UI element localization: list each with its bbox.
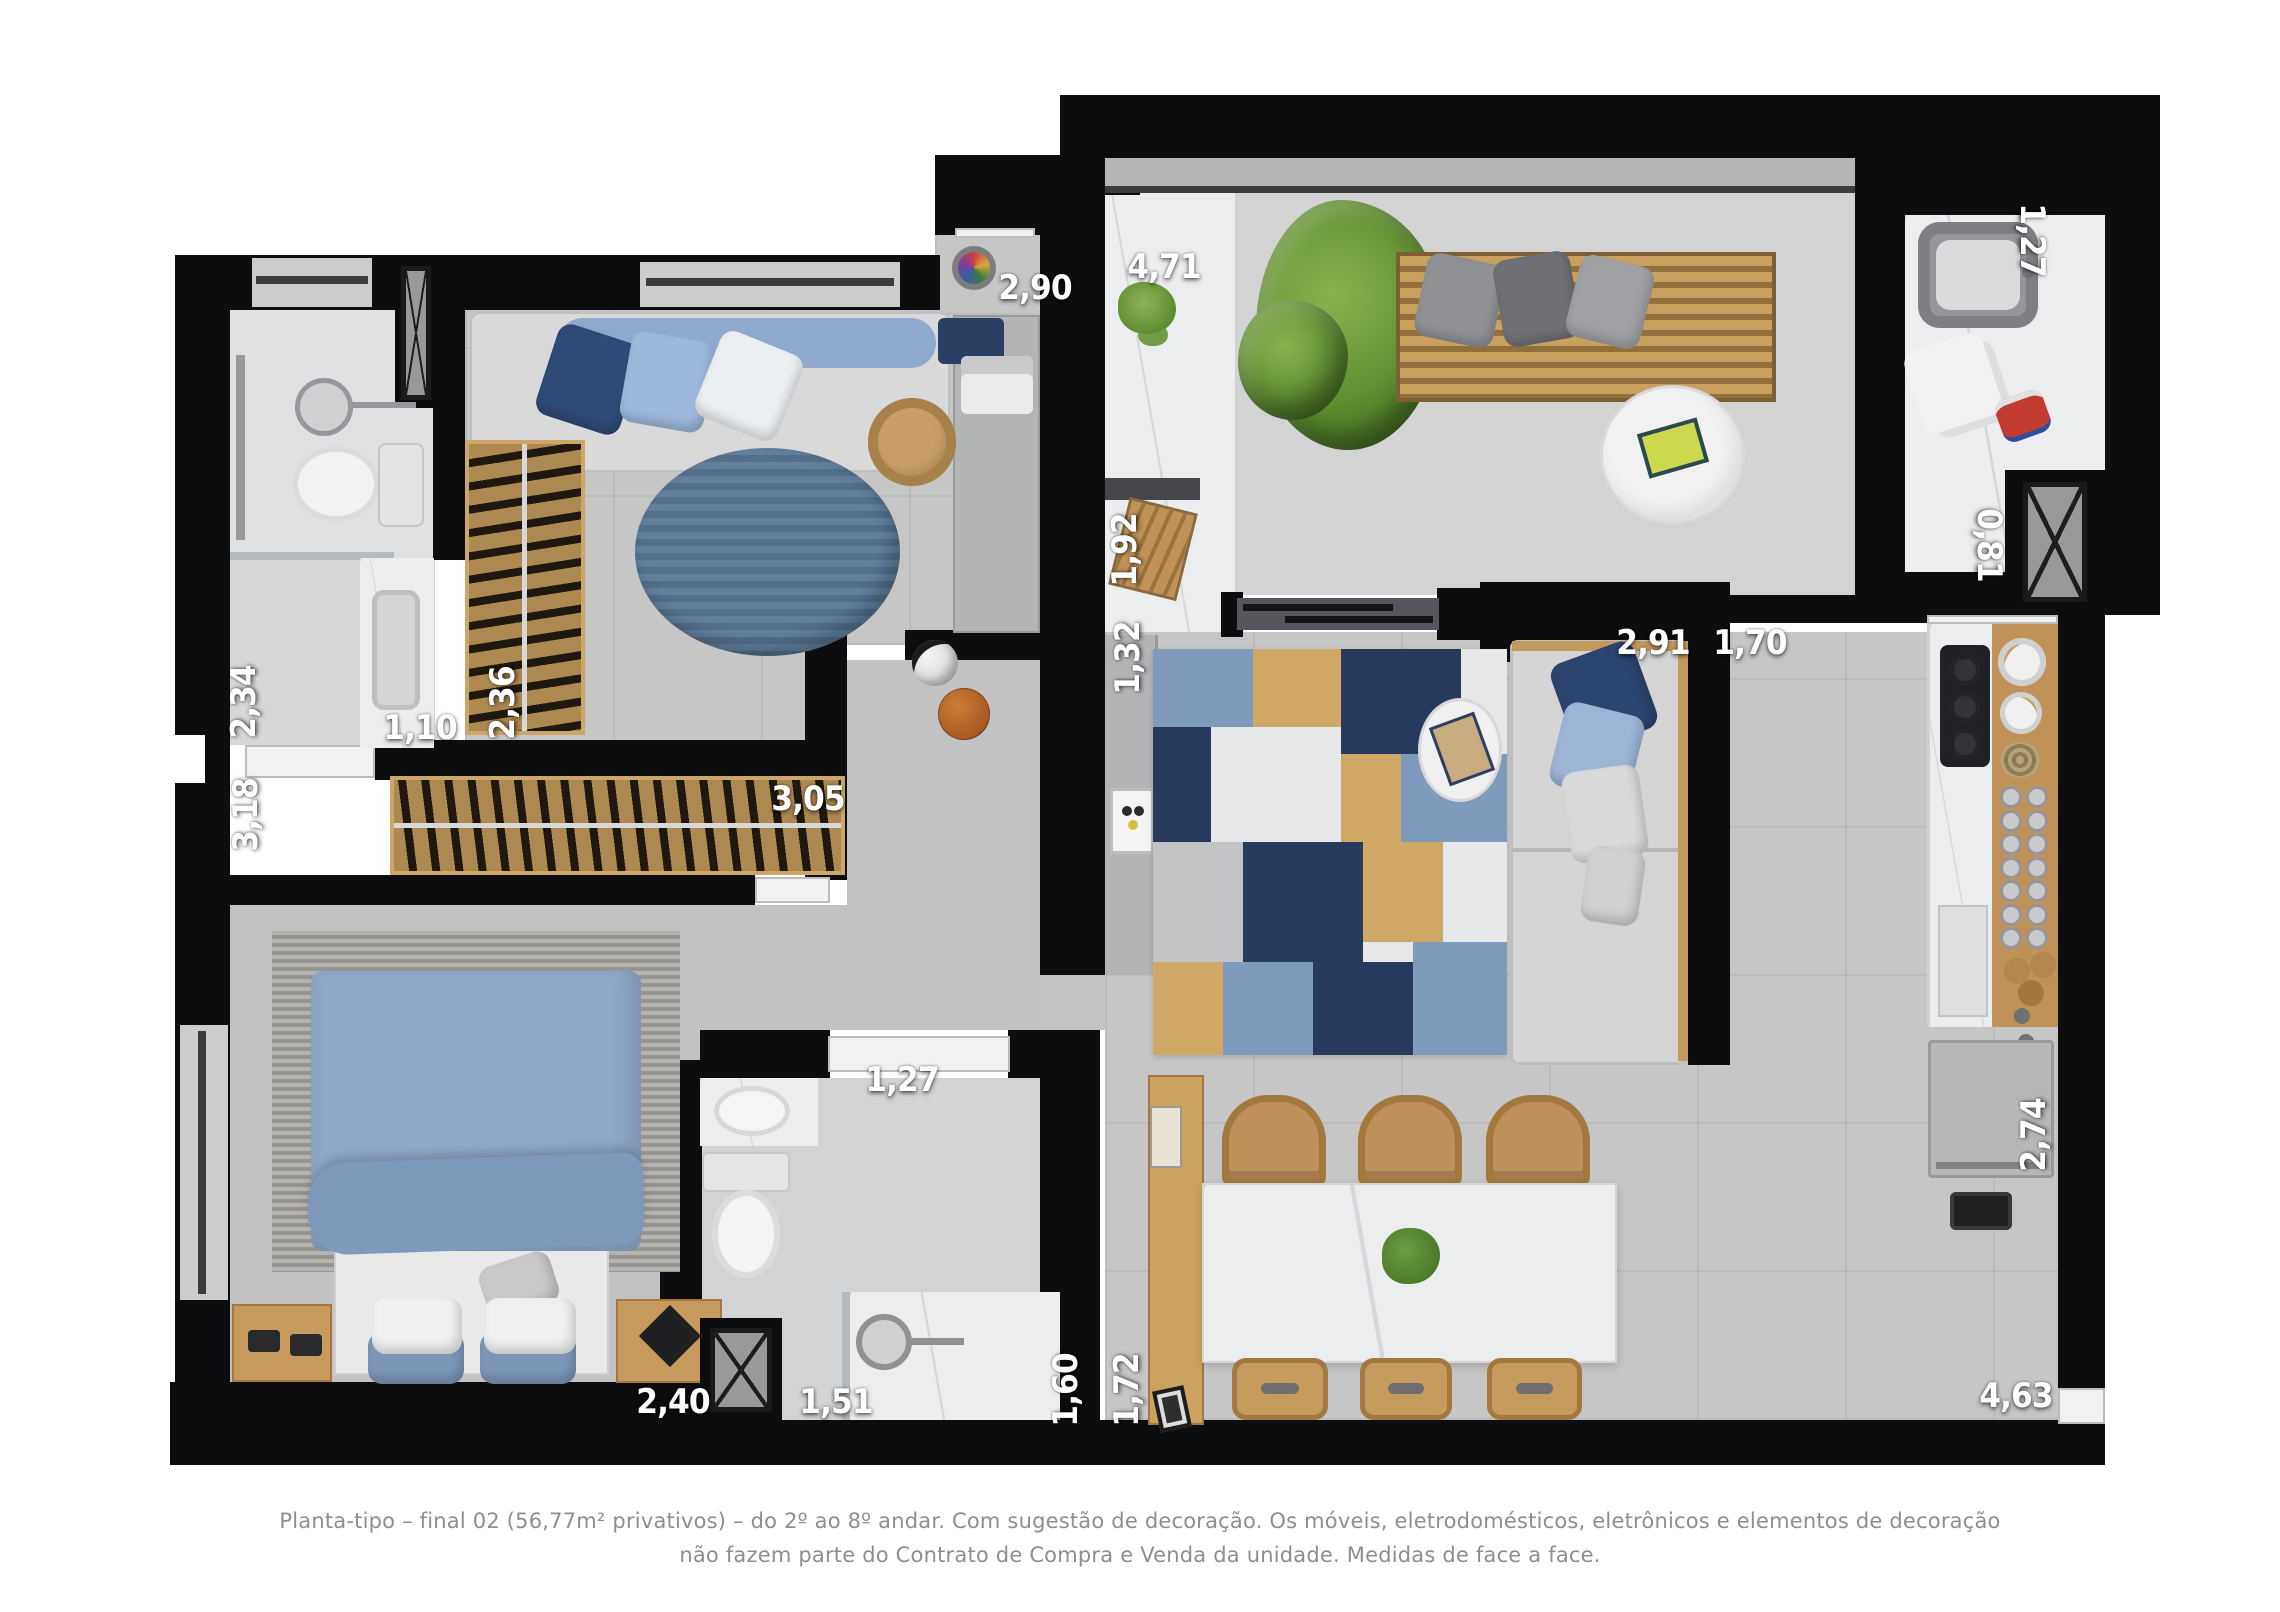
pepper-grinders — [2004, 958, 2030, 984]
cooktop-burner-1 — [1950, 655, 1980, 685]
wall-terrace-ensuite — [1855, 95, 1905, 618]
toilet-bathroom1-bowl — [292, 446, 380, 522]
kitchen-bowl-small — [2000, 692, 2042, 734]
terrace-console-slab — [1105, 478, 1200, 500]
shaft-bath1-x-panel — [401, 266, 431, 400]
bench-pillow-2 — [1491, 249, 1583, 349]
dim-shaft-width: 0,81 — [1972, 508, 2006, 581]
sink-basin-bathroom2 — [714, 1086, 790, 1136]
wall-bottom — [700, 1420, 2105, 1465]
window-bathroom1-glass — [256, 276, 368, 284]
dim-bathroom1-door: 1,10 — [383, 711, 456, 745]
spice-jar — [2000, 810, 2022, 832]
rug-patch — [1243, 842, 1363, 967]
sliding-door-rail2 — [1285, 616, 1433, 623]
media-frame-dots — [1122, 806, 1132, 816]
spice-jar — [2026, 786, 2048, 808]
wall-top-terrace — [1060, 95, 1860, 160]
sink-basin-bathroom1 — [372, 590, 420, 710]
dining-chair-3 — [1486, 1095, 1590, 1187]
kitchen-sink-inset — [1938, 905, 1988, 1017]
dim-bedroom1-depth: 3,18 — [229, 778, 263, 851]
sideboard-magazine — [1150, 1106, 1182, 1168]
pen-cup — [952, 246, 996, 290]
door-bathroom1 — [245, 745, 375, 778]
kitchen-basket — [2000, 742, 2040, 778]
terrace-flower-deco — [1118, 282, 1176, 334]
rug-patch — [1211, 727, 1341, 842]
dim-tv-niche-width: 1,32 — [1111, 621, 1145, 694]
spice-jar — [2026, 810, 2048, 832]
wall-bath2-top-left — [700, 1030, 830, 1078]
basketball — [938, 688, 990, 740]
shower-head — [856, 1314, 912, 1370]
dim-hall-width: 1,70 — [1713, 626, 1786, 660]
dining-stool-1 — [1232, 1358, 1328, 1420]
cooktop-burner-3 — [1950, 729, 1980, 759]
rug-patch — [1153, 649, 1253, 727]
dim-kitchen-width: 4,63 — [1979, 1379, 2052, 1413]
rug-patch — [1153, 727, 1211, 842]
spice-jar — [2026, 833, 2048, 855]
sofa-wood-trim-right — [1678, 641, 1688, 1061]
dim-kitchen-depth: 2,74 — [2017, 1098, 2051, 1171]
dining-stool-2 — [1360, 1358, 1452, 1420]
soccer-ball — [912, 640, 958, 686]
dim-ensuite-width: 1,27 — [2015, 203, 2049, 276]
dim-living-width: 2,91 — [1616, 626, 1689, 660]
towel-bar — [236, 355, 245, 540]
dim-bed-width: 2,40 — [636, 1385, 709, 1419]
spice-jar — [2000, 904, 2022, 926]
spice-jar — [2000, 833, 2022, 855]
spice-jar — [2026, 927, 2048, 949]
dim-bathroom2-width: 1,51 — [799, 1385, 872, 1419]
sliding-door-track — [1237, 598, 1439, 630]
kitchen-side-table — [1950, 1192, 2012, 1230]
shaft-ensuite-x-panel — [2023, 482, 2087, 602]
shaft-bathroom2-x-panel — [710, 1328, 772, 1412]
plan-caption-line1: Planta-tipo – final 02 (56,77m² privativ… — [0, 1504, 2280, 1538]
dim-wardrobe2-width: 2,36 — [486, 666, 520, 739]
kitchen-counter-sill — [1927, 615, 2058, 624]
corridor-living-opening — [1040, 975, 1105, 1030]
rug-patch — [1413, 942, 1507, 1055]
dining-chair-2 — [1358, 1095, 1462, 1187]
dim-bathroom2-door: 1,27 — [865, 1063, 938, 1097]
rug-patch — [1341, 754, 1401, 842]
dim-bathroom1-depth: 2,34 — [227, 665, 261, 738]
shower-arm — [348, 402, 416, 408]
spice-jar — [2000, 786, 2022, 808]
floor-plan: 4,71 1,27 2,90 1,92 0,81 2,34 1,10 2,36 … — [0, 0, 2280, 1612]
spice-jar — [2000, 880, 2022, 902]
wall-bath1-bedroom2 — [433, 255, 465, 560]
rug-patch — [1443, 842, 1507, 942]
rug-patch — [1153, 842, 1243, 962]
laptop — [961, 356, 1033, 414]
nightstand-left-trays — [248, 1330, 280, 1352]
dim-shower-width: 1,60 — [1049, 1353, 1083, 1426]
door-bedroom1 — [755, 877, 830, 903]
counter-knobs — [2014, 1008, 2030, 1024]
dining-stool-3 — [1487, 1358, 1582, 1420]
bed-pillow-white-left — [372, 1298, 462, 1354]
exterior-notch — [175, 735, 205, 783]
sofa-pillow-gray-small — [1579, 844, 1647, 927]
spice-jar-grid — [2000, 786, 2048, 950]
dim-wardrobe1-width: 3,05 — [771, 782, 844, 816]
bed-duvet-fold — [306, 1152, 645, 1256]
dim-sideboard-width: 1,72 — [1110, 1353, 1144, 1426]
cooktop-burner-2 — [1950, 692, 1980, 722]
toilet-bathroom2-tank — [702, 1152, 790, 1192]
wall-desk-nook-top — [935, 155, 1040, 235]
kitchen-bowl-large — [1998, 638, 2046, 686]
corridor-floor-lower — [700, 905, 1040, 1030]
toilet-bathroom2-bowl — [712, 1190, 780, 1278]
rug-patch — [1153, 962, 1223, 1055]
toilet-bathroom1-tank — [378, 443, 424, 527]
wall-right-kitchen — [2058, 612, 2105, 1390]
wall-corridor-right — [1040, 470, 1082, 975]
terrace-parapet-track — [1105, 186, 1855, 193]
dim-terrace-niche-depth: 1,92 — [1108, 513, 1142, 586]
rug-patch — [1363, 842, 1443, 942]
bed-pillow-white-right — [484, 1298, 576, 1354]
dim-terrace-width: 4,71 — [1127, 250, 1200, 284]
wall-bedroom1-top — [230, 875, 755, 905]
sliding-door-rail1 — [1243, 604, 1393, 611]
desk-chair — [868, 398, 956, 486]
spice-jar — [2000, 857, 2022, 879]
spice-jar — [2026, 880, 2048, 902]
bathtub-inner — [1936, 240, 2020, 310]
rug-patch — [1313, 962, 1413, 1055]
plan-caption-line2: não fazem parte do Contrato de Compra e … — [0, 1538, 2280, 1572]
window-bedroom2-glass — [646, 278, 894, 286]
spice-jar — [2026, 857, 2048, 879]
wall-media-left — [1080, 635, 1105, 975]
media-frame-deco — [1110, 788, 1154, 854]
spice-jar — [2000, 927, 2022, 949]
rug-patch — [1223, 962, 1313, 1055]
wall-right-upper — [2105, 95, 2160, 615]
dining-chair-1 — [1222, 1095, 1326, 1187]
bedroom2-round-rug — [635, 448, 900, 656]
window-desk-nook-sill — [955, 228, 1035, 238]
nightstand-left — [232, 1304, 332, 1382]
door-kitchen-side — [2058, 1388, 2105, 1424]
dim-bedroom2-width: 2,90 — [998, 271, 1071, 305]
window-bedroom1-glass — [198, 1031, 206, 1294]
shower-head-arm — [906, 1338, 964, 1345]
shower-drain — [295, 378, 353, 436]
wall-bath2-top-right — [1008, 1030, 1060, 1078]
spice-jar — [2026, 904, 2048, 926]
wall-bottom-bedroom1 — [170, 1382, 700, 1465]
